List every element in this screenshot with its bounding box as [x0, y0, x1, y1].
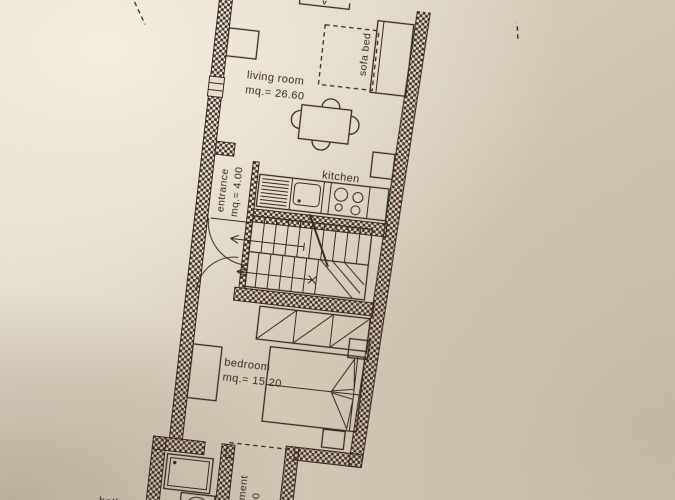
stair-mid-line: [249, 252, 368, 266]
window-opening: [207, 76, 224, 98]
bedroom-label: bedroom: [224, 357, 271, 374]
vent-box: V: [299, 0, 352, 10]
degagement-label: degagement: [232, 475, 251, 500]
bathroom-right-wall: [203, 444, 235, 500]
dashed-mark-right: [512, 2, 522, 38]
pillow-icon: [332, 357, 358, 393]
living-room-area-label: mq.= 26.60: [245, 84, 305, 103]
floor-plan-drawing: V living room mq.= 26.60 sofa bed: [0, 0, 673, 500]
sink-icon: [293, 182, 321, 207]
dining-table-icon: [288, 95, 361, 154]
sofa-bed-icon: sofa bed: [318, 15, 414, 96]
bedroom: bedroom mq.= 15.20: [183, 299, 373, 457]
counter-divider: [289, 178, 293, 210]
radiator-icon: [226, 28, 259, 59]
pillow-icon: [328, 393, 354, 429]
bathroom-label: bathroom: [98, 495, 149, 500]
window-mark-label: V: [320, 0, 329, 8]
entrance-wall-stub: [215, 141, 235, 156]
left-wall-upper: [211, 0, 237, 78]
floor-plan-photo: V living room mq.= 26.60 sofa bed: [0, 0, 675, 500]
closet-icon: [187, 344, 222, 401]
living-room-window: [207, 76, 224, 98]
counter-divider: [328, 182, 332, 214]
corridor-right-wall: [266, 446, 299, 500]
living-room: living room mq.= 26.60 sofa bed: [214, 4, 413, 180]
bathroom: bathroom degagement mq.= 3.00: [96, 447, 266, 500]
counter-divider: [367, 187, 371, 219]
sofa-bed-label: sofa bed: [357, 32, 374, 77]
nightstand-icon: [321, 429, 345, 449]
dashed-mark-left: [132, 2, 147, 24]
radiator-icon: [370, 152, 395, 179]
shower-tray-icon: [164, 454, 214, 494]
counter-divider: [321, 182, 325, 214]
corridor-boundary-dashed-line: [229, 443, 293, 450]
stair-direction-arrow-upper: [230, 234, 304, 250]
bathroom-left-wall: [134, 436, 166, 500]
drainer-icon: [260, 179, 290, 206]
left-wall-lower: [169, 96, 221, 439]
stove-icon: [333, 187, 364, 215]
table-top: [298, 105, 352, 144]
bedroom-area-label: mq.= 15.20: [222, 371, 282, 390]
